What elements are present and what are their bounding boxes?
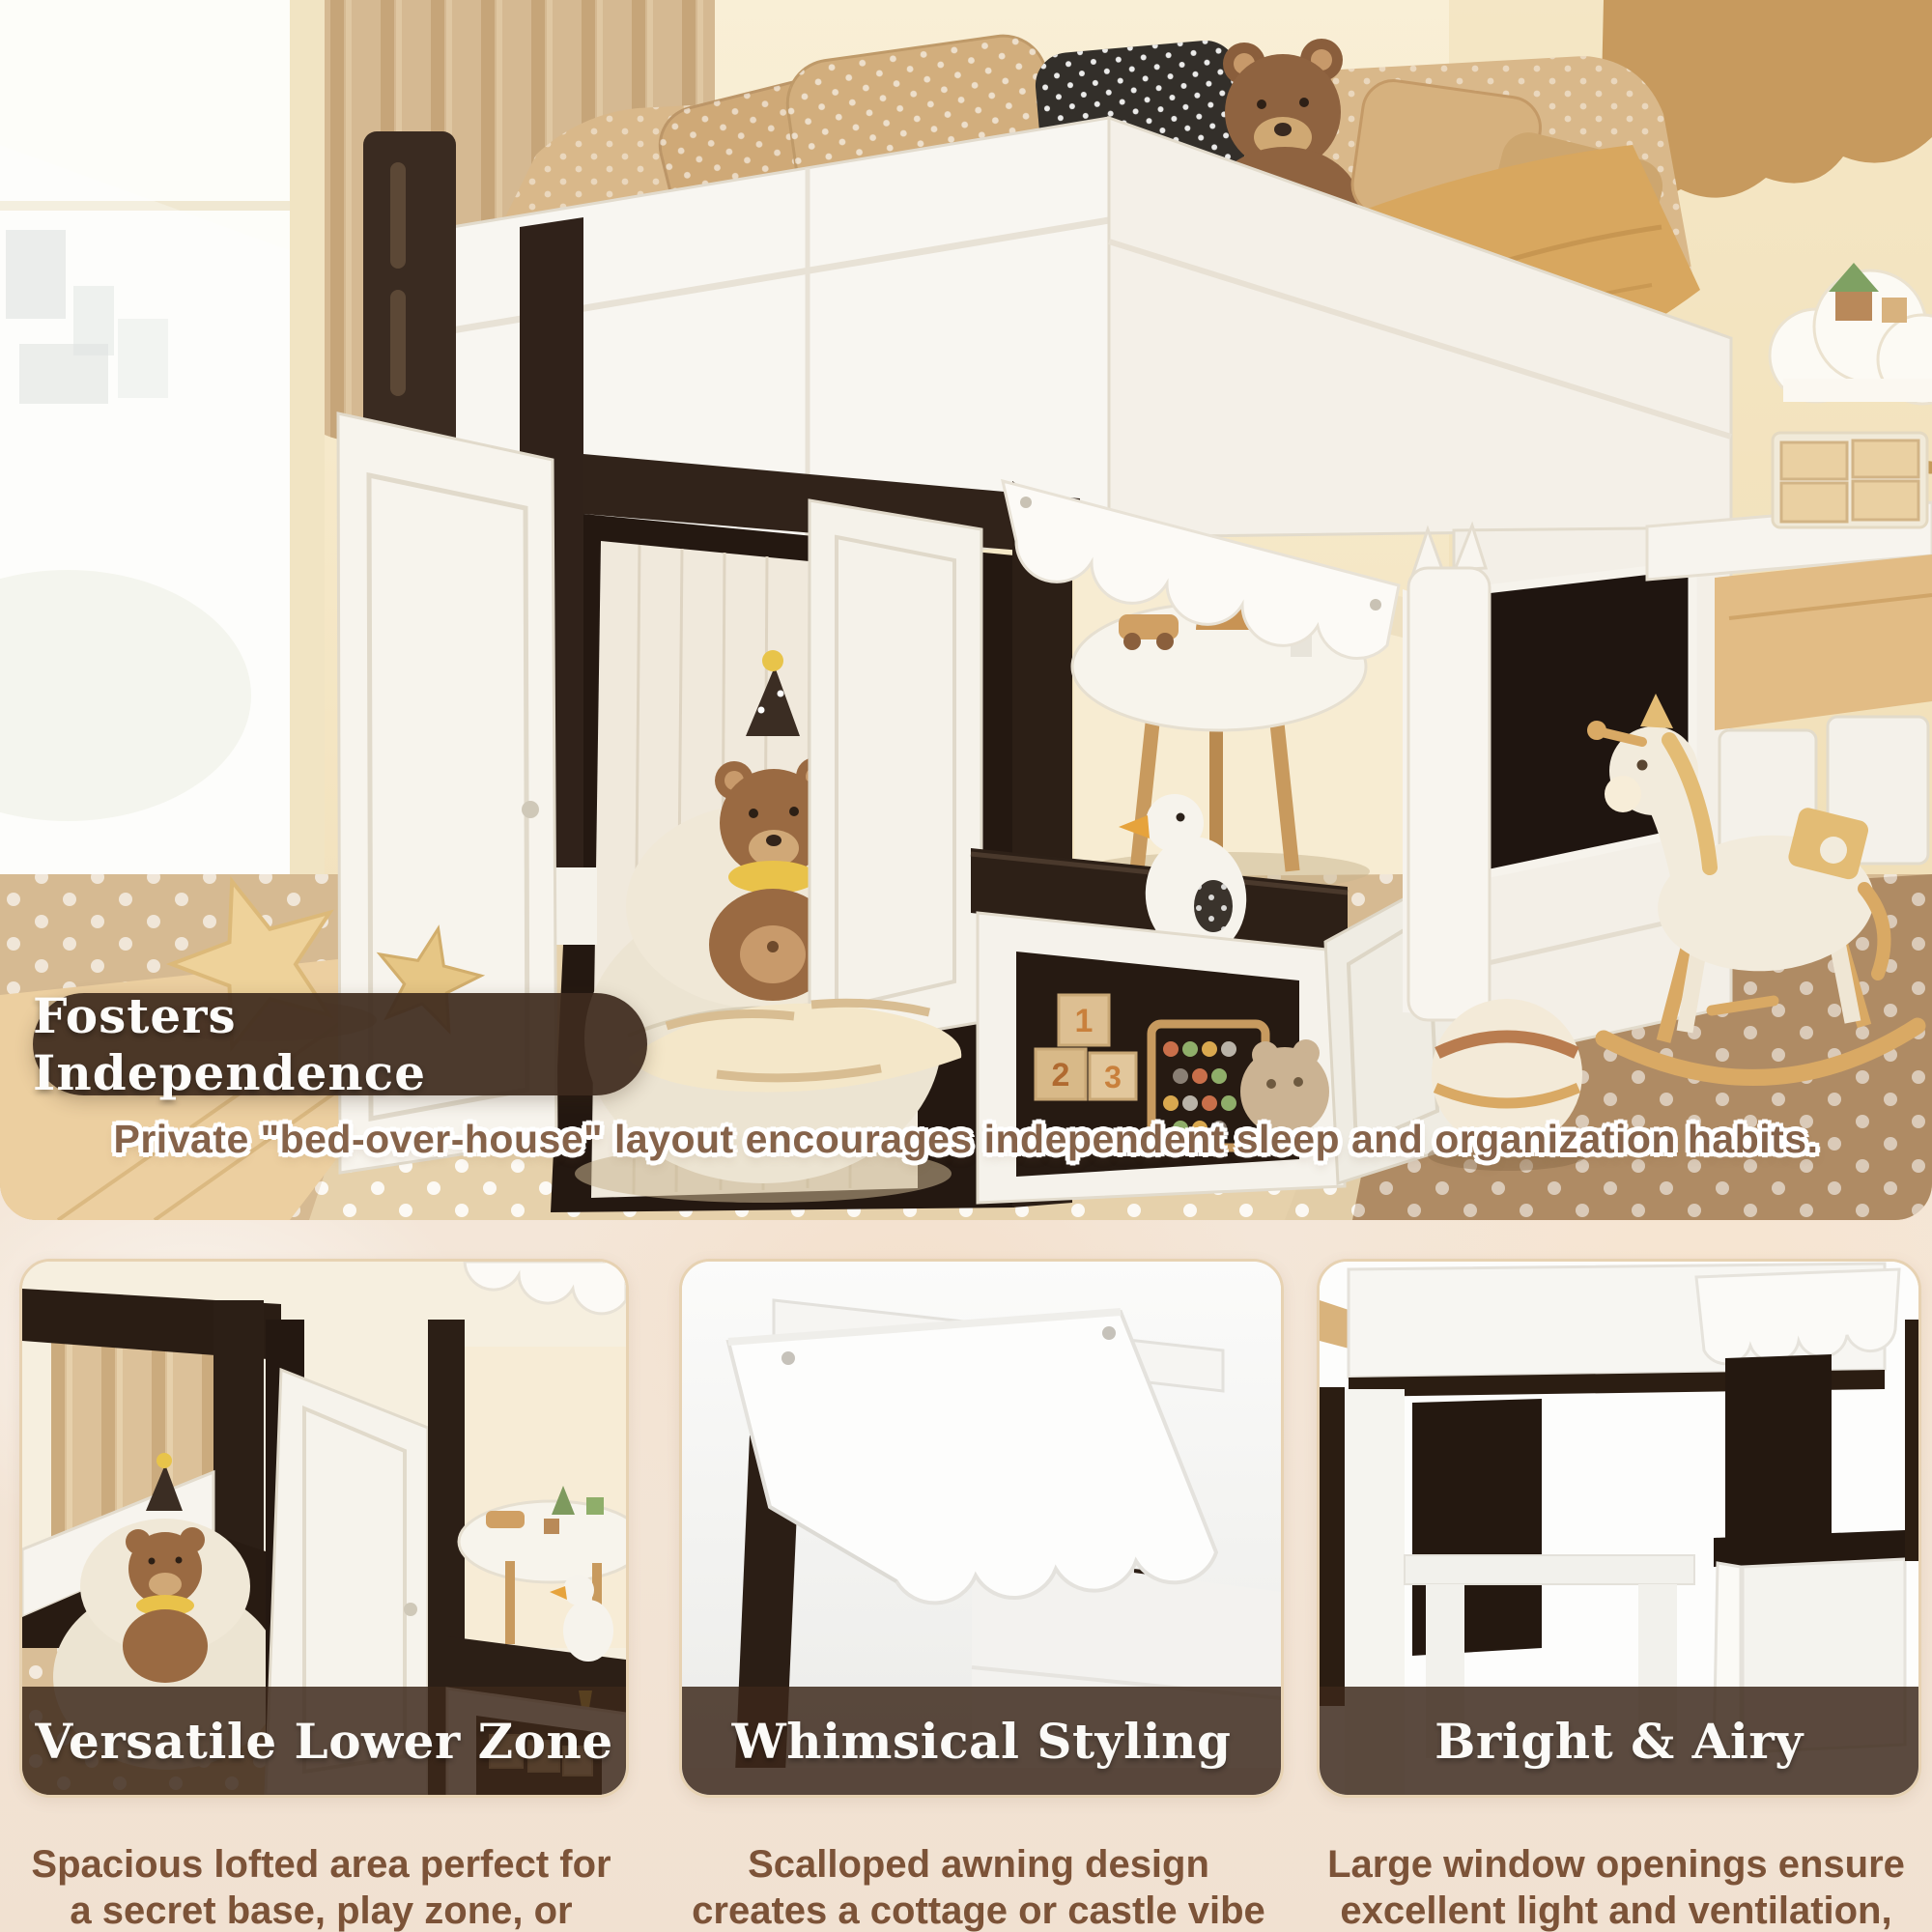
card-description: Scalloped awning design creates a cottag… bbox=[689, 1841, 1268, 1932]
toy-block-number: 2 bbox=[1052, 1057, 1070, 1094]
card-title-band: Bright & Airy bbox=[1320, 1687, 1918, 1795]
feature-badge: Fosters Independence bbox=[33, 993, 647, 1095]
hero-photo: 1 2 3 bbox=[0, 0, 1932, 1220]
hero-caption: Private "bed-over-house" layout encourag… bbox=[0, 1117, 1932, 1162]
feature-card-whimsical-styling: Whimsical Styling bbox=[679, 1259, 1284, 1798]
toy-block-number: 1 bbox=[1075, 1003, 1094, 1039]
card-title-band: Whimsical Styling bbox=[682, 1687, 1281, 1795]
toy-block-number: 3 bbox=[1104, 1060, 1122, 1094]
card-title: Versatile Lower Zone bbox=[35, 1713, 612, 1770]
card-title: Whimsical Styling bbox=[732, 1713, 1232, 1770]
card-title: Bright & Airy bbox=[1435, 1713, 1804, 1770]
feature-card-bright-and-airy: Bright & Airy bbox=[1317, 1259, 1921, 1798]
card-description: Large window openings ensure excellent l… bbox=[1321, 1841, 1911, 1932]
card-title-band: Versatile Lower Zone bbox=[22, 1687, 626, 1795]
card-description: Spacious lofted area perfect for a secre… bbox=[29, 1841, 613, 1932]
feature-card-versatile-lower-zone: Versatile Lower Zone bbox=[19, 1259, 629, 1798]
feature-badge-label: Fosters Independence bbox=[33, 987, 647, 1101]
product-infographic: 1 2 3 bbox=[0, 0, 1932, 1932]
